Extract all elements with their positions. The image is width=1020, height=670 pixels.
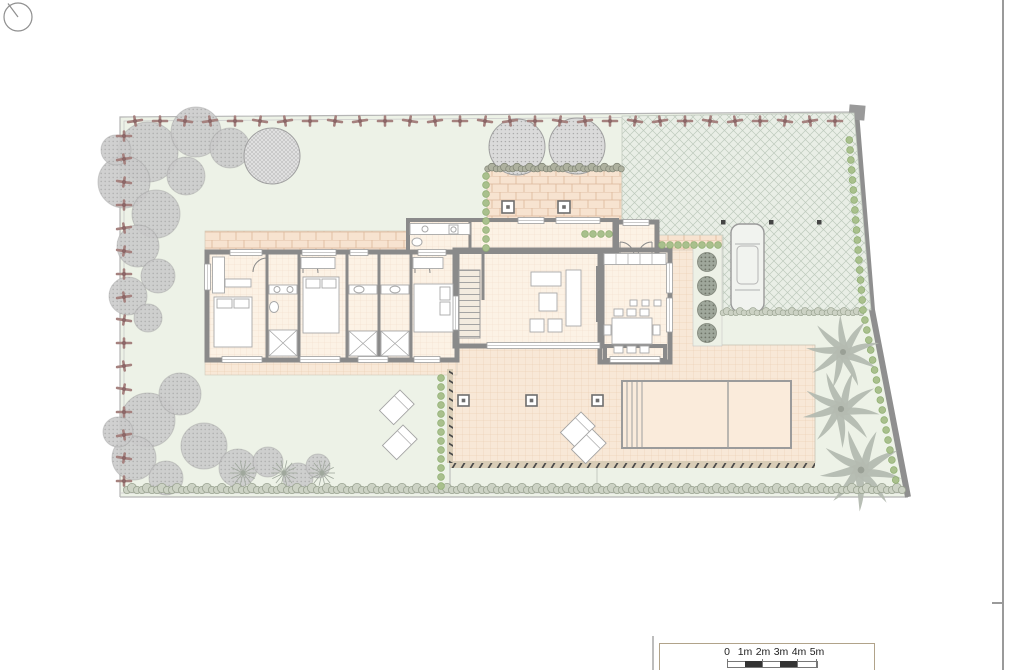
north-indicator-icon	[0, 0, 40, 40]
site-plan-drawing	[0, 0, 1020, 670]
plant	[846, 137, 853, 144]
plant	[667, 242, 674, 249]
plant	[849, 177, 856, 184]
plant	[885, 437, 892, 444]
plant	[483, 200, 490, 207]
plant	[879, 407, 886, 414]
plant	[438, 483, 445, 490]
deciduous-tree	[253, 447, 283, 477]
scale-bar-tick	[762, 659, 763, 668]
bar-stool	[642, 300, 649, 306]
toilet	[270, 302, 279, 313]
plant	[590, 231, 597, 238]
plant	[438, 411, 445, 418]
round-shrub	[698, 324, 717, 343]
sofa	[531, 272, 561, 286]
plant	[862, 317, 869, 324]
pillow	[440, 302, 450, 315]
plant	[883, 427, 890, 434]
sink	[390, 286, 400, 293]
carport-post	[721, 220, 726, 225]
plant	[847, 157, 854, 164]
plant	[871, 367, 878, 374]
plant	[715, 242, 722, 249]
title-block-edge	[652, 636, 654, 670]
wardrobe	[213, 257, 225, 293]
pillow	[440, 287, 450, 300]
chair	[614, 309, 623, 316]
scale-label-5m: 5m	[810, 646, 825, 658]
plant	[850, 187, 857, 194]
pillow	[217, 299, 232, 308]
plant	[875, 387, 882, 394]
fireplace-wall	[596, 266, 602, 322]
sink	[422, 226, 428, 232]
scale-label-3m: 3m	[774, 646, 789, 658]
sofa	[566, 270, 581, 326]
plant	[851, 197, 858, 204]
scale-bar-tick	[797, 659, 798, 668]
plant	[483, 236, 490, 243]
plant	[483, 245, 490, 252]
bar-stool	[630, 300, 637, 306]
carport-post	[817, 220, 822, 225]
plant	[881, 417, 888, 424]
dining-table	[612, 318, 652, 344]
planting-bed	[693, 246, 722, 346]
sheet-border-line	[1002, 0, 1004, 670]
plant	[707, 242, 714, 249]
bar-stool	[654, 300, 661, 306]
pillow	[306, 279, 320, 288]
scale-bar-rule	[727, 661, 818, 668]
scale-bar-tick	[816, 659, 817, 668]
carport-post	[769, 220, 774, 225]
scale-bar-segment	[745, 661, 763, 667]
plant	[848, 167, 855, 174]
coffee-table	[539, 293, 557, 311]
chair	[614, 346, 623, 353]
plant	[598, 231, 605, 238]
plant	[858, 287, 865, 294]
plant	[890, 467, 897, 474]
plant	[483, 182, 490, 189]
plant	[483, 227, 490, 234]
scale-label-4m: 4m	[792, 646, 807, 658]
scale-label-2m: 2m	[756, 646, 771, 658]
plant	[438, 474, 445, 481]
plant	[859, 297, 866, 304]
plant	[606, 231, 613, 238]
chair	[653, 325, 660, 335]
plant	[675, 242, 682, 249]
wardrobe	[413, 258, 443, 269]
plant	[438, 420, 445, 427]
plant	[438, 375, 445, 382]
round-shrub	[698, 301, 717, 320]
plant	[438, 429, 445, 436]
sink	[274, 287, 280, 293]
plant	[438, 402, 445, 409]
chair	[640, 309, 649, 316]
plant	[877, 397, 884, 404]
sink	[287, 287, 293, 293]
plant	[659, 242, 666, 249]
plant	[438, 438, 445, 445]
plant	[483, 173, 490, 180]
sheet-border-tick	[992, 602, 1002, 604]
swimming-pool	[622, 381, 791, 448]
plant	[683, 242, 690, 249]
plant	[699, 242, 706, 249]
staircase	[459, 270, 480, 338]
plant	[860, 307, 867, 314]
pillow	[322, 279, 336, 288]
counter	[410, 224, 470, 235]
plant	[892, 477, 899, 484]
plant	[852, 207, 859, 214]
sink	[354, 286, 364, 293]
clipped-tree	[244, 128, 300, 184]
plant	[855, 247, 862, 254]
plant	[888, 457, 895, 464]
plant	[438, 393, 445, 400]
plant	[865, 337, 872, 344]
chair	[604, 325, 611, 335]
plant	[438, 447, 445, 454]
chair	[627, 346, 636, 353]
round-shrub	[698, 253, 717, 272]
deciduous-tree	[103, 417, 133, 447]
plant	[483, 218, 490, 225]
plant	[854, 237, 861, 244]
deciduous-tree	[167, 157, 205, 195]
plant	[483, 209, 490, 216]
deciduous-tree	[219, 449, 257, 487]
bench	[225, 279, 251, 287]
deciduous-tree	[141, 259, 175, 293]
deciduous-tree	[159, 373, 201, 415]
plant	[873, 377, 880, 384]
plant	[438, 456, 445, 463]
plant	[887, 447, 894, 454]
plant	[856, 267, 863, 274]
plant	[582, 231, 589, 238]
plant	[863, 327, 870, 334]
toilet	[412, 238, 422, 246]
scale-bar-tick	[727, 659, 728, 668]
plant	[856, 257, 863, 264]
plant	[438, 384, 445, 391]
plant	[867, 347, 874, 354]
chair	[640, 346, 649, 353]
plant	[847, 147, 854, 154]
wardrobe	[301, 258, 335, 269]
chair	[627, 309, 636, 316]
plant	[869, 357, 876, 364]
plant	[483, 191, 490, 198]
scale-bar-segment	[780, 661, 798, 667]
scale-label-0: 0	[724, 646, 730, 658]
site-plan-sheet: 0 1m 2m 3m 4m 5m	[0, 0, 1020, 670]
pouf	[530, 319, 544, 332]
scale-label-1m: 1m	[738, 646, 753, 658]
scale-bar: 0 1m 2m 3m 4m 5m	[659, 643, 875, 670]
deciduous-tree	[210, 128, 250, 168]
plant	[852, 217, 859, 224]
washer	[449, 225, 458, 234]
pillow	[234, 299, 249, 308]
kitchen-counter	[604, 254, 666, 265]
plant	[853, 227, 860, 234]
parked-car	[731, 224, 764, 312]
deciduous-tree	[306, 454, 330, 478]
deciduous-tree	[134, 304, 162, 332]
plant	[691, 242, 698, 249]
plant	[857, 277, 864, 284]
plant	[438, 465, 445, 472]
pouf	[548, 319, 562, 332]
round-shrub	[698, 277, 717, 296]
